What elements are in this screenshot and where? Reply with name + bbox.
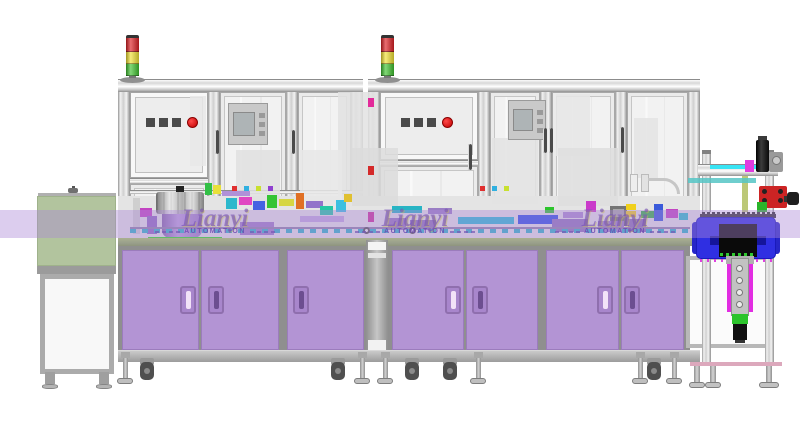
cad-render-viewport: Lianyi AUTOMATION Lianyi AUTOMATION Lian… — [0, 0, 800, 438]
tower-red-light — [126, 38, 139, 52]
tower-yellow-light — [126, 52, 139, 64]
tower-red-light — [381, 38, 394, 52]
tower-green-light — [126, 64, 139, 76]
tower-green-light — [381, 64, 394, 76]
tower-yellow-light — [381, 52, 394, 64]
watermark-band — [0, 210, 800, 238]
